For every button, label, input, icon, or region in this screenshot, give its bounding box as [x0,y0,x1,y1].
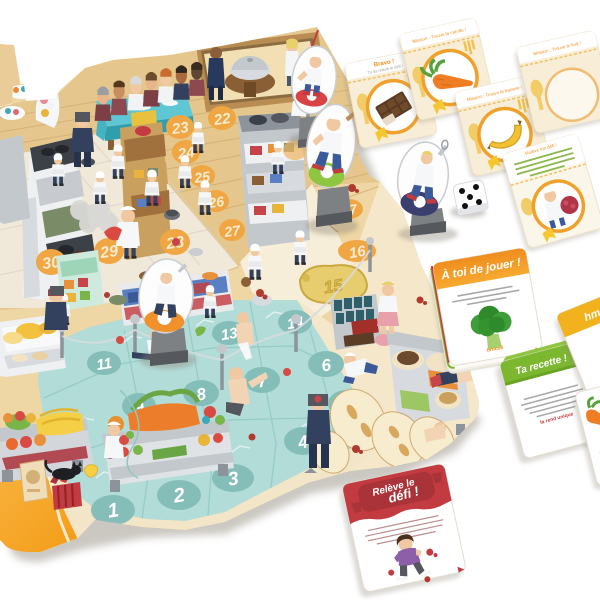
svg-text:11: 11 [95,355,113,374]
svg-text:22: 22 [212,110,233,129]
svg-text:23: 23 [170,119,191,138]
